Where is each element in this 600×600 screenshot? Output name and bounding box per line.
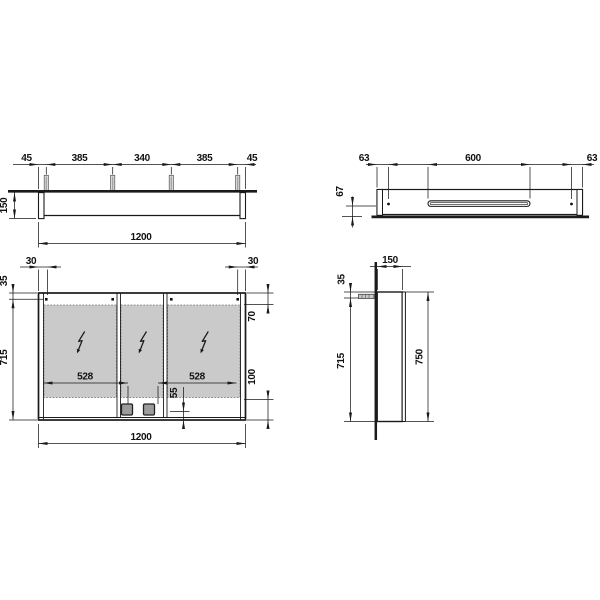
top-view: 45 385 340 385 45 150 1200 [0, 153, 258, 248]
front-view: 30 30 35 715 [0, 256, 274, 448]
dimension-label: 150 [382, 255, 399, 266]
cabinet-body-top [39, 193, 246, 219]
dimension-label: 55 [169, 387, 180, 398]
mirror-door-edge [402, 292, 405, 422]
mounting-pin-icon [236, 175, 240, 192]
dimension-750-height: 750 [406, 292, 434, 422]
mounting-pin-icons [44, 175, 240, 192]
dimension-left-column: 35 715 [0, 275, 43, 420]
mirror-door-glass-panels [44, 305, 240, 398]
dimension-label: 1200 [130, 432, 152, 443]
mounting-pin-icon [44, 175, 48, 192]
shaver-socket [144, 404, 155, 415]
dimension-label: 70 [247, 311, 258, 322]
mounting-pin-icon [111, 175, 115, 192]
dimension-30-right: 30 [225, 256, 259, 295]
dimension-label: 35 [0, 275, 10, 286]
dimension-label: 63 [587, 153, 598, 164]
light-slot-inner [430, 203, 528, 205]
drawing-canvas: 45 385 340 385 45 150 1200 [0, 0, 600, 600]
dimension-label: 528 [189, 372, 206, 383]
side-view: 150 35 715 750 [336, 255, 434, 440]
dimension-label: 385 [197, 153, 214, 164]
dimension-depth-150: 150 [0, 193, 36, 219]
dimension-label: 528 [77, 372, 94, 383]
dimension-width-1200: 1200 [39, 222, 246, 248]
underside-view: 63 600 63 67 [335, 153, 598, 228]
dimension-label: 30 [26, 256, 37, 267]
mirror-door-glass [121, 305, 163, 398]
wall-anchor-icon [359, 294, 375, 298]
mirror-door-glass [44, 305, 117, 398]
hinge-dot [111, 298, 114, 301]
hinge-dot [170, 298, 173, 301]
dimension-top-chain: 45 385 340 385 45 [13, 153, 258, 189]
hinge-dot [236, 298, 239, 301]
dimension-label: 150 [0, 197, 10, 214]
cabinet-body-underside [372, 190, 590, 217]
dimension-label: 1200 [130, 232, 152, 243]
dimension-label: 45 [247, 153, 258, 164]
dimension-right-column: 70 100 [244, 284, 274, 429]
dimension-label: 750 [415, 348, 426, 365]
mounting-pin-icon [169, 175, 173, 192]
dimension-label: 63 [359, 153, 370, 164]
dimension-30-left: 30 [20, 256, 61, 295]
dimension-label: 30 [248, 256, 259, 267]
dimension-label: 45 [21, 153, 32, 164]
dimension-label: 340 [134, 153, 151, 164]
cable-hole [570, 203, 573, 206]
shaver-socket [122, 404, 133, 415]
shaver-sockets [122, 404, 155, 415]
hinge-dot [45, 298, 48, 301]
cable-hole [387, 203, 390, 206]
dimension-label: 35 [337, 274, 348, 285]
cabinet-side-body [377, 292, 405, 422]
dimension-label: 715 [336, 352, 347, 369]
dimension-label: 600 [465, 153, 482, 164]
dimension-label: 100 [247, 368, 258, 385]
dimension-front-width-1200: 1200 [39, 424, 246, 448]
dimension-label: 385 [72, 153, 89, 164]
dimension-67: 67 [335, 186, 376, 228]
dimension-label: 715 [0, 349, 10, 366]
dimension-label: 67 [335, 186, 346, 197]
technical-drawing-page: 45 385 340 385 45 150 1200 [0, 0, 600, 600]
